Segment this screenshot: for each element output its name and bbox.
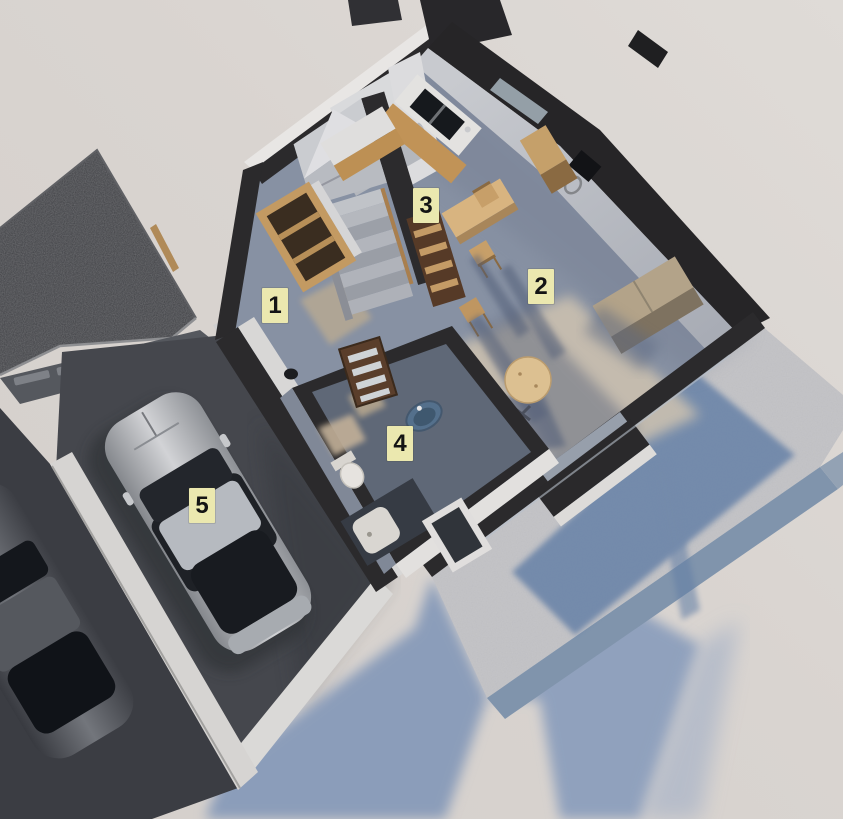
- room-marker-5[interactable]: 5: [189, 488, 215, 523]
- room-marker-2-label: 2: [534, 273, 547, 300]
- room-marker-4[interactable]: 4: [387, 426, 413, 461]
- floorplan-3d-render: 1 2 3 4 5: [0, 0, 843, 819]
- room-marker-3[interactable]: 3: [413, 188, 439, 223]
- room-marker-2[interactable]: 2: [528, 269, 554, 304]
- floor-plant: [284, 369, 298, 380]
- room-marker-1[interactable]: 1: [262, 288, 288, 323]
- round-table: [505, 357, 551, 403]
- room-marker-1-label: 1: [268, 292, 281, 319]
- room-marker-5-label: 5: [195, 492, 208, 519]
- room-marker-4-label: 4: [393, 430, 406, 457]
- render-canvas: [0, 0, 843, 819]
- room-marker-3-label: 3: [419, 192, 432, 219]
